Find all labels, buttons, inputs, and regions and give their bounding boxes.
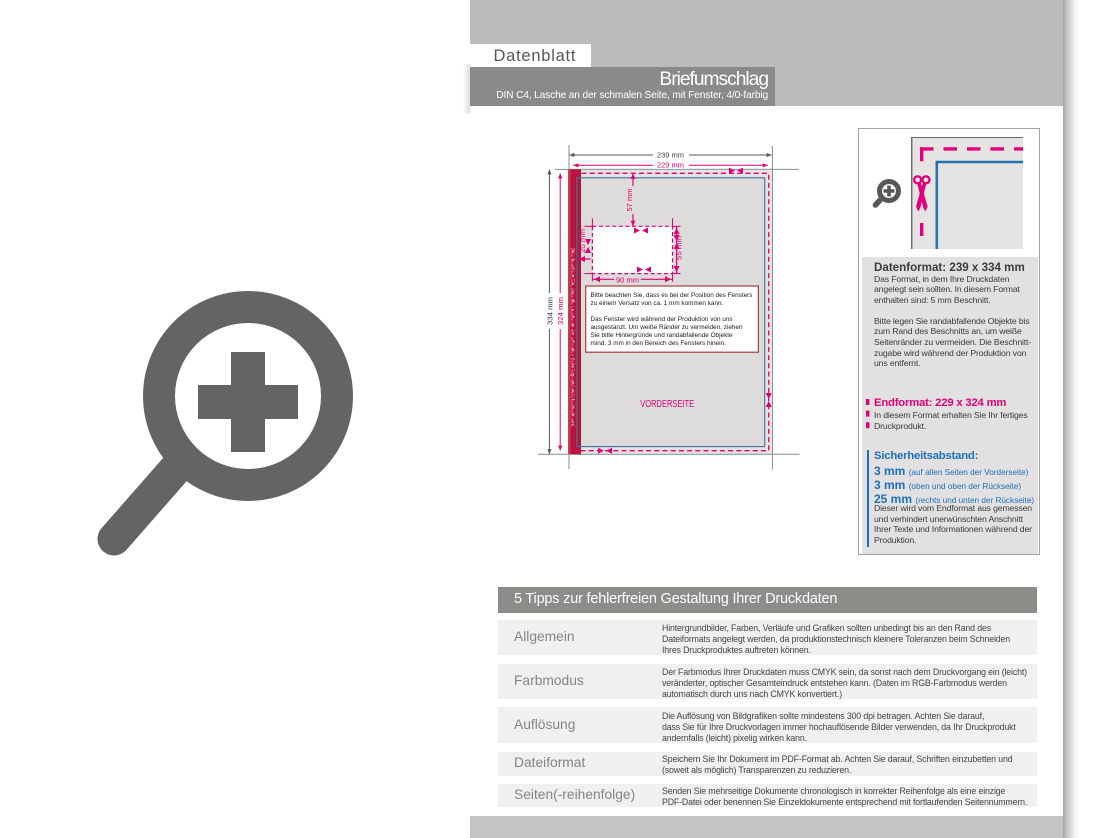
svg-text:239 mm: 239 mm	[657, 151, 684, 160]
svg-text:57 mm: 57 mm	[625, 189, 634, 212]
svg-text:mind. 3 mm in den Bereich des: mind. 3 mm in den Bereich des Fensters h…	[591, 340, 727, 347]
svg-text:Sie bitte Hintergründe und ran: Sie bitte Hintergründe und randabfallend…	[591, 332, 734, 339]
svg-text:ausgestanzt. Um weiße Ränder z: ausgestanzt. Um weiße Ränder zu vermeide…	[591, 324, 743, 331]
svg-text:324 mm: 324 mm	[556, 297, 565, 325]
svg-text:Das Fenster wird während der P: Das Fenster wird während der Produktion …	[591, 316, 733, 323]
svg-text:90 mm: 90 mm	[616, 275, 639, 284]
svg-text:20 mm: 20 mm	[578, 229, 587, 253]
svg-text:Bitte beachten Sie, dass es be: Bitte beachten Sie, dass es bei der Posi…	[591, 292, 753, 299]
svg-text:334 mm: 334 mm	[545, 297, 554, 325]
svg-text:VORDERSEITE: VORDERSEITE	[640, 399, 694, 410]
svg-text:zu einem Versatz von ca. 1 mm: zu einem Versatz von ca. 1 mm kommen kan…	[591, 300, 724, 307]
svg-text:229 mm: 229 mm	[657, 161, 684, 170]
